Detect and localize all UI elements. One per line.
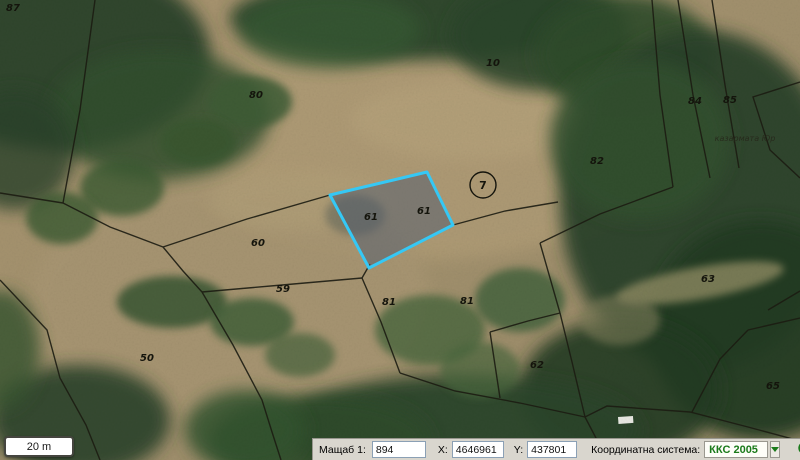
parcel-label-87: 87: [6, 3, 20, 14]
scale-bar: 20 m: [4, 436, 74, 457]
place-name-label: казармата Юр: [715, 134, 776, 143]
parcel-label-84: 84: [688, 96, 702, 107]
parcel-label-61: 61: [364, 212, 378, 223]
scale-ratio-input[interactable]: [372, 441, 426, 458]
map-application-window: 7 87801084858261616059818163506265 казар…: [0, 0, 800, 460]
chevron-down-icon: [771, 447, 779, 452]
y-coordinate-input[interactable]: [527, 441, 577, 458]
scale-ratio-label: Мащаб 1:: [319, 444, 366, 456]
parcel-label-82: 82: [590, 156, 604, 167]
coordinate-system-value-box[interactable]: ККС 2005: [704, 441, 768, 458]
magnifier-icon: [796, 440, 800, 460]
coordinate-system-value: ККС 2005: [709, 444, 758, 456]
parcel-label-65: 65: [766, 381, 780, 392]
parcel-label-61: 61: [417, 206, 431, 217]
parcel-label-59: 59: [276, 284, 290, 295]
y-coordinate-label: Y:: [514, 444, 523, 456]
map-canvas[interactable]: 7 87801084858261616059818163506265 казар…: [0, 0, 800, 460]
parcel-label-81: 81: [382, 297, 396, 308]
coordinate-system-dropdown-button[interactable]: [770, 441, 780, 458]
circle-marker-number: 7: [479, 179, 487, 192]
parcel-label-60: 60: [251, 238, 265, 249]
parcel-label-85: 85: [723, 95, 737, 106]
parcel-label-81: 81: [460, 296, 474, 307]
parcel-label-62: 62: [530, 360, 544, 371]
parcel-label-50: 50: [140, 353, 154, 364]
status-bar: Мащаб 1: X: Y: Координатна система: ККС …: [312, 438, 800, 460]
coordinate-system-label: Координатна система:: [591, 444, 700, 456]
parcel-label-63: 63: [701, 274, 715, 285]
parcel-label-80: 80: [249, 90, 263, 101]
x-coordinate-input[interactable]: [452, 441, 504, 458]
scale-bar-label: 20 m: [27, 441, 51, 453]
x-coordinate-label: X:: [438, 444, 448, 456]
parcel-label-10: 10: [486, 58, 500, 69]
search-zoom-button[interactable]: [796, 440, 800, 460]
